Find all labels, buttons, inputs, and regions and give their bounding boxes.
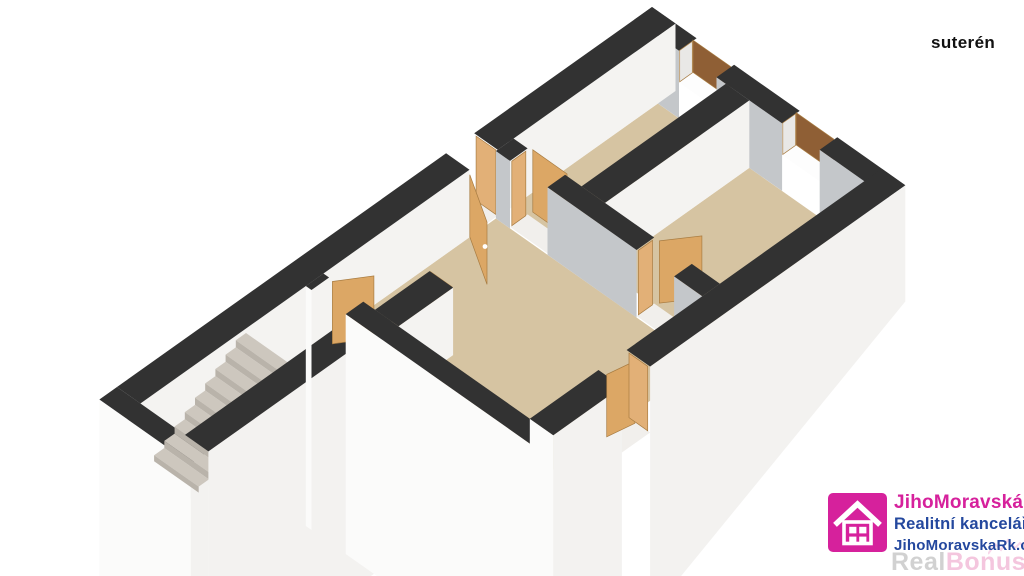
agency-subtitle: Realitní kancelář (894, 516, 1024, 533)
agency-url: JihoMoravskaRk.cz (894, 538, 1024, 553)
hall-door-jamb (512, 151, 526, 226)
nw-door-handle (483, 244, 488, 249)
room-b-door-jamb (638, 240, 652, 314)
agency-name: JihoMoravská (894, 493, 1024, 512)
floor-label: suterén (931, 33, 995, 53)
wall-sw-sliver-face (306, 286, 312, 530)
se-door-jamb (629, 353, 648, 431)
agency-text-block: JihoMoravská Realitní kancelář JihoMorav… (894, 493, 1024, 553)
agency-logo: JihoMoravská Realitní kancelář JihoMorav… (828, 493, 1024, 553)
house-icon (828, 493, 887, 552)
floorplan-stage: suterén RealBonus.cz JihoMoravská Realit… (0, 0, 1024, 576)
wall-cross-seg1-face (496, 151, 510, 228)
floorplan-3d-render (0, 0, 1024, 576)
wall-se-left-face (530, 419, 554, 576)
